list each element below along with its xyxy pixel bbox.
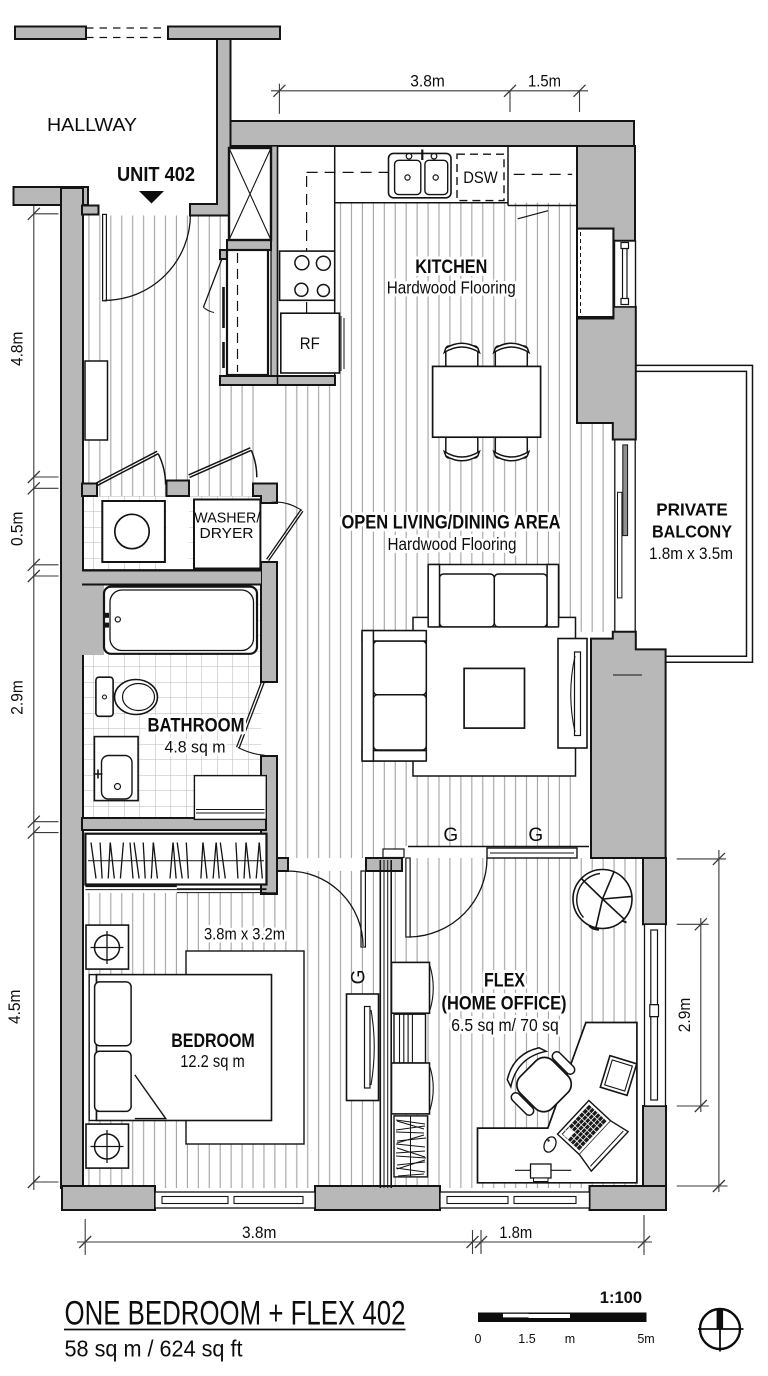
svg-text:BATHROOM: BATHROOM — [148, 716, 245, 737]
svg-text:2.9m: 2.9m — [675, 998, 694, 1033]
svg-text:3.8m: 3.8m — [410, 72, 445, 91]
svg-text:4.8 sq m: 4.8 sq m — [165, 738, 226, 757]
svg-text:UNIT 402: UNIT 402 — [117, 164, 195, 186]
svg-text:4.8m: 4.8m — [8, 332, 27, 367]
svg-text:OPEN LIVING/DINING AREA: OPEN LIVING/DINING AREA — [342, 512, 561, 534]
svg-text:6.5 sq m/ 70 sq: 6.5 sq m/ 70 sq — [451, 1015, 559, 1035]
svg-text:0.5m: 0.5m — [8, 512, 27, 547]
svg-text:3.8m x 3.2m: 3.8m x 3.2m — [204, 925, 285, 944]
svg-text:Hardwood Flooring: Hardwood Flooring — [388, 534, 517, 554]
svg-text:1.8m x 3.5m: 1.8m x 3.5m — [649, 545, 733, 563]
svg-text:2.9m: 2.9m — [8, 680, 27, 715]
svg-text:1.5m: 1.5m — [528, 72, 561, 91]
svg-text:DSW: DSW — [463, 169, 498, 187]
svg-text:PRIVATE: PRIVATE — [656, 500, 728, 520]
svg-text:RF: RF — [300, 335, 320, 353]
svg-text:3.8m: 3.8m — [242, 1223, 277, 1242]
svg-text:1.5: 1.5 — [518, 1332, 535, 1346]
svg-text:BEDROOM: BEDROOM — [171, 1030, 255, 1052]
svg-text:ONE BEDROOM + FLEX 402: ONE BEDROOM + FLEX 402 — [65, 1295, 406, 1333]
svg-text:WASHER/: WASHER/ — [194, 511, 261, 527]
svg-text:BALCONY: BALCONY — [652, 522, 732, 542]
svg-text:Hardwood Flooring: Hardwood Flooring — [387, 278, 516, 298]
svg-text:G: G — [443, 825, 458, 846]
svg-text:KITCHEN: KITCHEN — [415, 257, 487, 278]
svg-text:0: 0 — [475, 1332, 482, 1346]
svg-text:4.5m: 4.5m — [5, 990, 24, 1025]
svg-text:1:100: 1:100 — [600, 1289, 642, 1307]
svg-text:FLEX: FLEX — [484, 970, 525, 992]
svg-text:DRYER: DRYER — [200, 526, 254, 542]
svg-text:12.2 sq m: 12.2 sq m — [180, 1051, 245, 1071]
svg-text:(HOME OFFICE): (HOME OFFICE) — [442, 993, 567, 1015]
svg-text:G: G — [349, 970, 370, 985]
svg-text:G: G — [528, 825, 543, 846]
svg-text:58 sq m / 624 sq ft: 58 sq m / 624 sq ft — [65, 1336, 243, 1362]
svg-text:m: m — [565, 1332, 575, 1346]
svg-text:5m: 5m — [637, 1332, 654, 1346]
svg-text:HALLWAY: HALLWAY — [47, 115, 137, 135]
svg-text:1.8m: 1.8m — [499, 1223, 532, 1242]
